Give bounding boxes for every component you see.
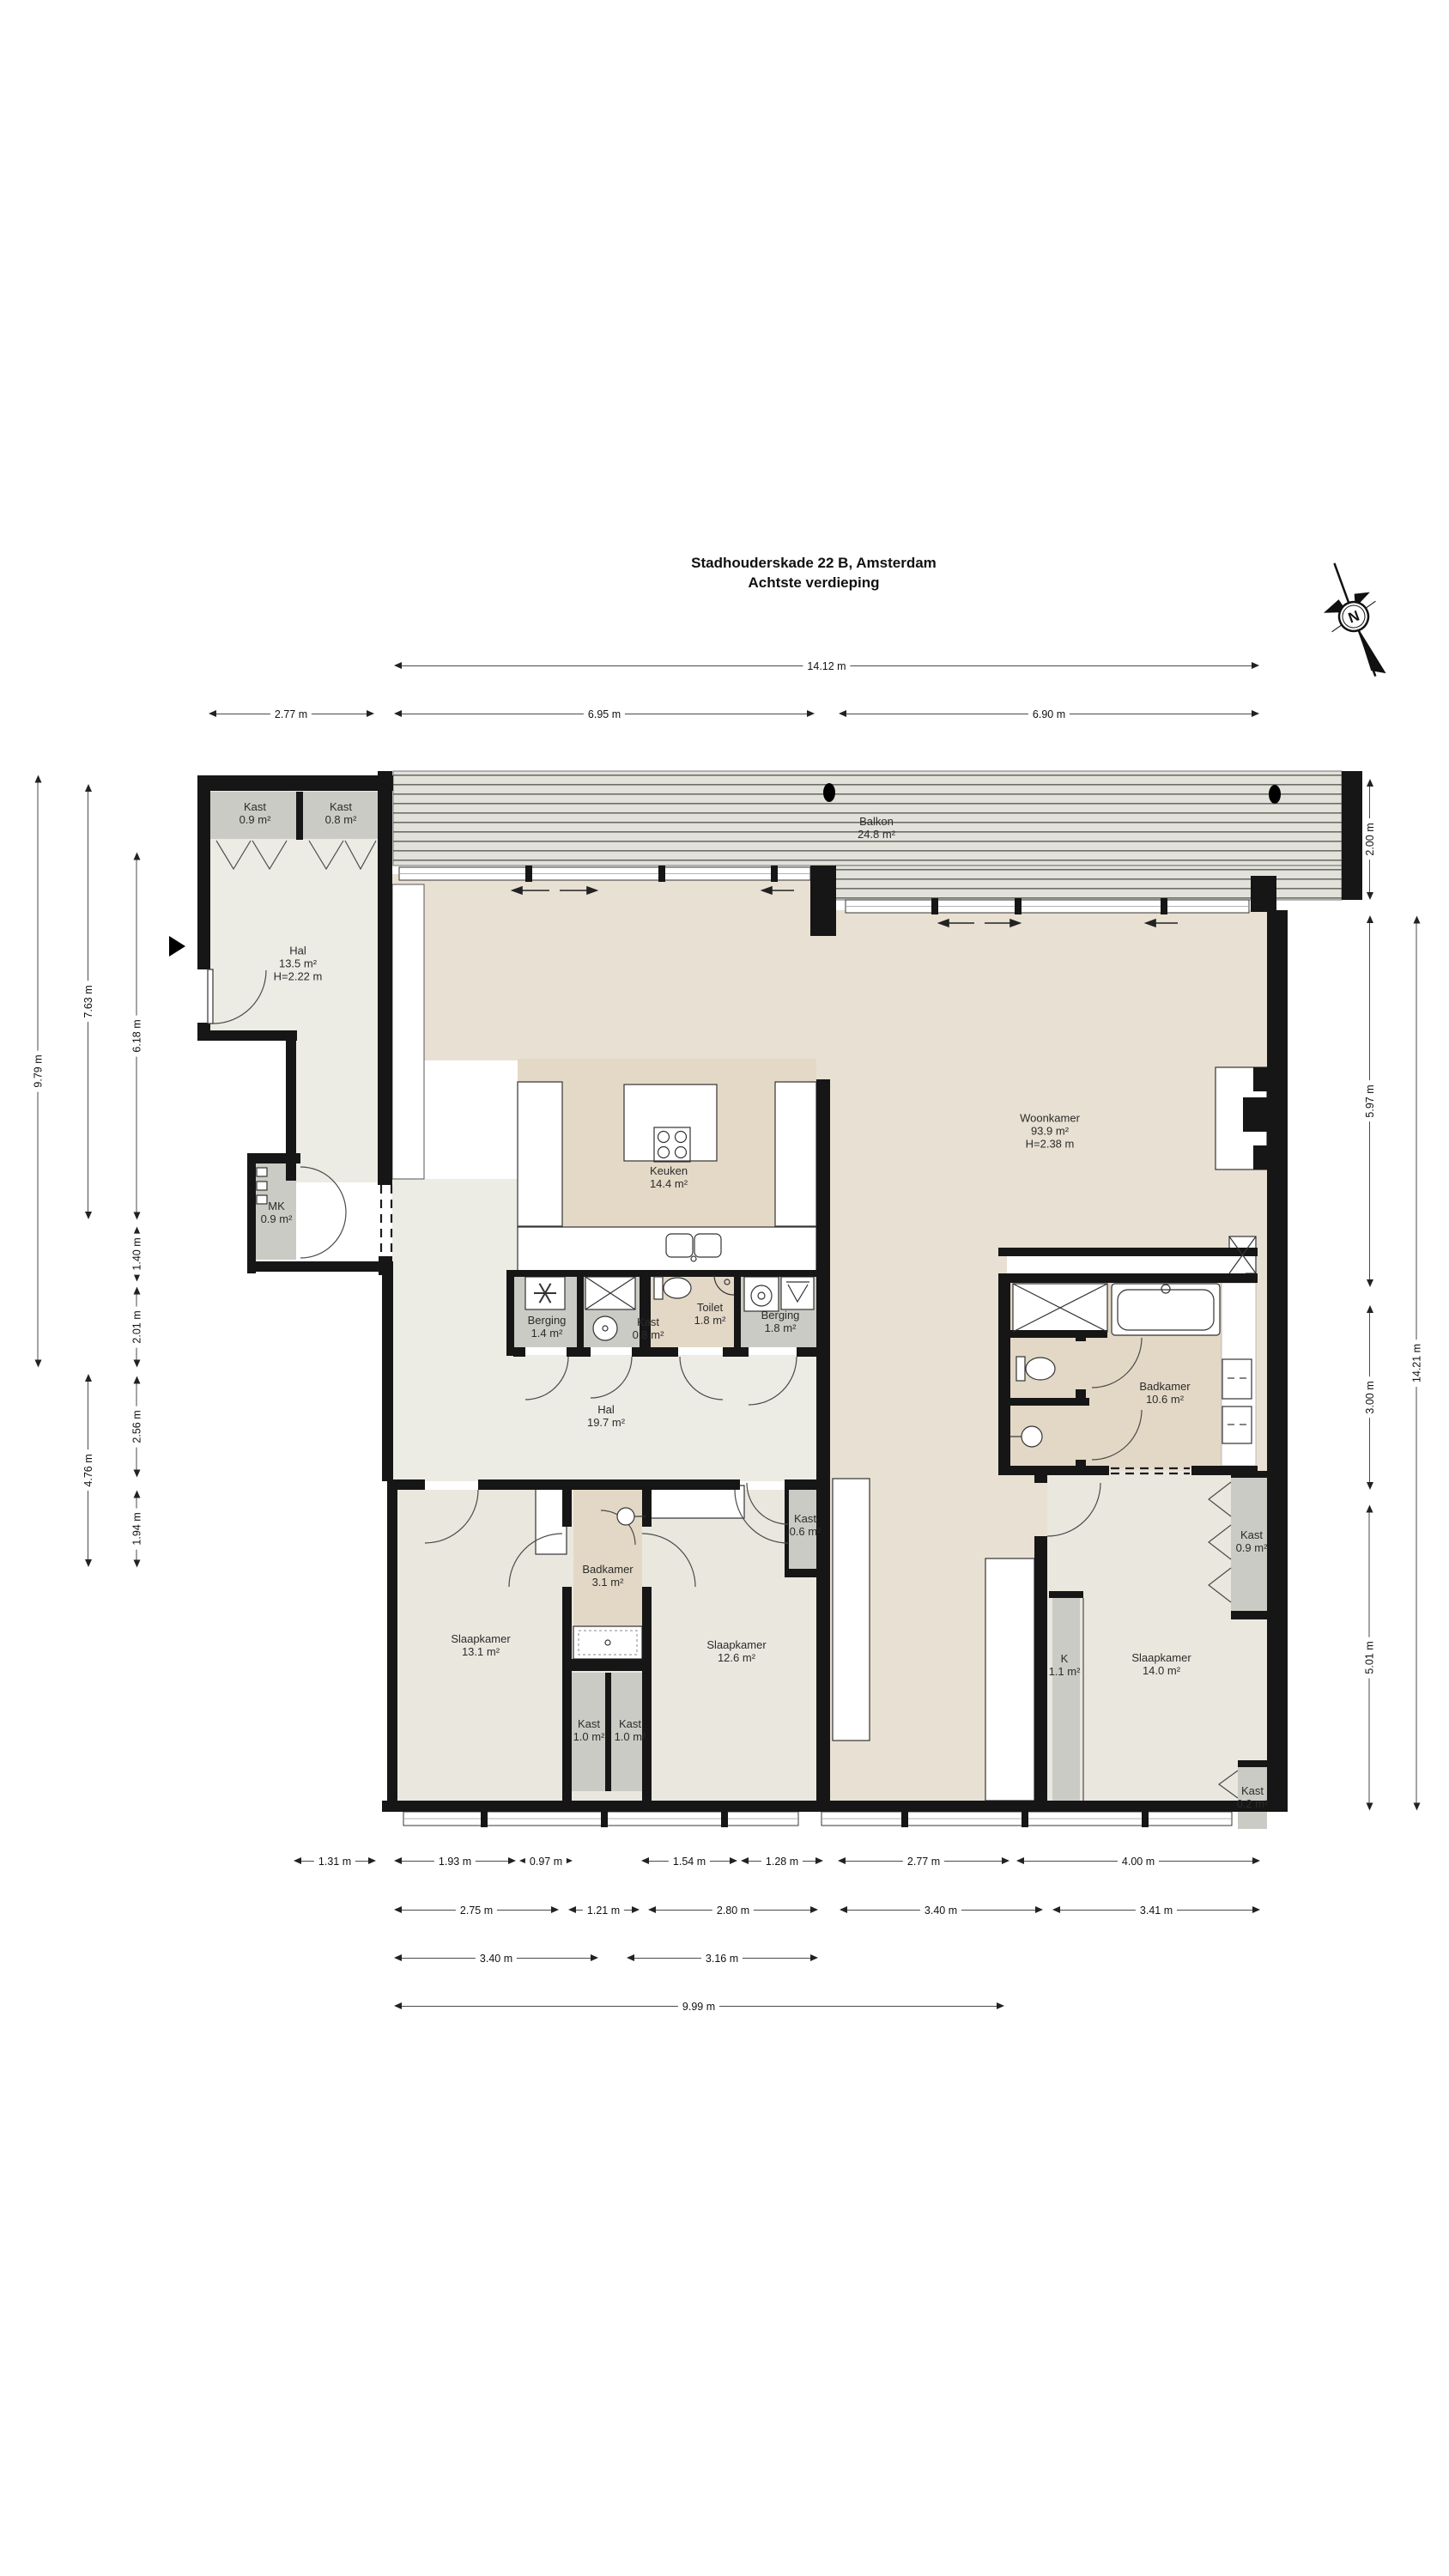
dimension-22: 6.18 m xyxy=(131,852,142,1219)
dimension-2: 6.95 m xyxy=(394,708,815,720)
dimension-31: 14.21 m xyxy=(1411,915,1422,1810)
dimension-12: 1.21 m xyxy=(568,1905,640,1916)
dimension-18: 9.99 m xyxy=(394,2001,1004,2012)
dimension-7: 1.54 m xyxy=(641,1856,737,1867)
dimension-29: 3.00 m xyxy=(1364,1305,1375,1490)
dimension-6: 0.97 m xyxy=(519,1856,573,1867)
dimension-11: 2.75 m xyxy=(394,1905,559,1916)
room-label-toilet: Toilet1.8 m² xyxy=(694,1301,726,1327)
room-label-kast-06: Kast0.6 m² xyxy=(790,1512,822,1538)
dimension-27: 2.00 m xyxy=(1364,779,1375,900)
room-label-slaapkamer-1: Slaapkamer13.1 m² xyxy=(451,1632,510,1658)
room-label-berging-2: Berging1.8 m² xyxy=(761,1309,800,1334)
floorplan-page: Stadhouderskade 22 B, Amsterdam Achtste … xyxy=(0,0,1449,2576)
room-label-kast-entree-links: Kast0.9 m² xyxy=(239,800,271,826)
north-compass-icon: N xyxy=(1310,555,1399,685)
dimension-19: 9.79 m xyxy=(33,775,44,1367)
room-label-slaapkamer-3: Slaapkamer14.0 m² xyxy=(1131,1651,1191,1677)
dimension-14: 3.40 m xyxy=(840,1905,1043,1916)
dimension-15: 3.41 m xyxy=(1052,1905,1260,1916)
dimension-20: 7.63 m xyxy=(82,784,94,1219)
room-label-hal-midden: Hal19.7 m² xyxy=(587,1403,625,1429)
dimension-10: 4.00 m xyxy=(1016,1856,1260,1867)
room-label-berging-1: Berging1.4 m² xyxy=(528,1314,567,1340)
dimension-5: 1.93 m xyxy=(394,1856,516,1867)
dimension-1: 2.77 m xyxy=(209,708,374,720)
room-label-k-kast: K1.1 m² xyxy=(1049,1652,1081,1678)
room-label-woonkamer: Woonkamer93.9 m²H=2.38 m xyxy=(1020,1112,1080,1151)
room-label-balkon: Balkon24.8 m² xyxy=(858,815,895,841)
room-label-slaapkamer-2: Slaapkamer12.6 m² xyxy=(706,1638,766,1664)
dimension-8: 1.28 m xyxy=(741,1856,823,1867)
dimension-16: 3.40 m xyxy=(394,1953,598,1964)
dimension-25: 2.56 m xyxy=(131,1376,142,1477)
dimension-30: 5.01 m xyxy=(1364,1504,1375,1810)
dimension-3: 6.90 m xyxy=(839,708,1259,720)
dimension-24: 2.01 m xyxy=(131,1286,142,1367)
dimension-17: 3.16 m xyxy=(627,1953,818,1964)
dimension-0: 14.12 m xyxy=(394,660,1259,671)
room-label-badkamer-groot: Badkamer10.6 m² xyxy=(1139,1380,1190,1406)
room-label-badkamer-klein: Badkamer3.1 m² xyxy=(582,1563,633,1589)
room-label-hal-entree: Hal13.5 m²H=2.22 m xyxy=(274,945,323,983)
dimension-13: 2.80 m xyxy=(648,1905,818,1916)
dimension-28: 5.97 m xyxy=(1364,915,1375,1287)
room-label-kast-entree-rechts: Kast0.8 m² xyxy=(325,800,357,826)
dimension-21: 4.76 m xyxy=(82,1374,94,1567)
room-label-keuken: Keuken14.4 m² xyxy=(650,1164,688,1190)
room-label-kast-09: Kast0.9 m² xyxy=(1236,1528,1268,1554)
dimension-26: 1.94 m xyxy=(131,1490,142,1567)
floorplan-drawing: N xyxy=(0,0,1449,2576)
dimension-9: 2.77 m xyxy=(838,1856,1009,1867)
room-label-mk: MK0.9 m² xyxy=(261,1200,293,1225)
room-label-kast-berging: Kast0.8 m² xyxy=(633,1315,664,1341)
dimension-4: 1.31 m xyxy=(294,1856,376,1867)
entrance-arrow-icon xyxy=(169,936,185,957)
dimension-23: 1.40 m xyxy=(131,1226,142,1281)
room-label-kast-10b: Kast1.0 m² xyxy=(615,1717,646,1743)
room-label-kast-10a: Kast1.0 m² xyxy=(573,1717,605,1743)
room-label-kast-02: Kast0.2 m² xyxy=(1237,1784,1269,1810)
